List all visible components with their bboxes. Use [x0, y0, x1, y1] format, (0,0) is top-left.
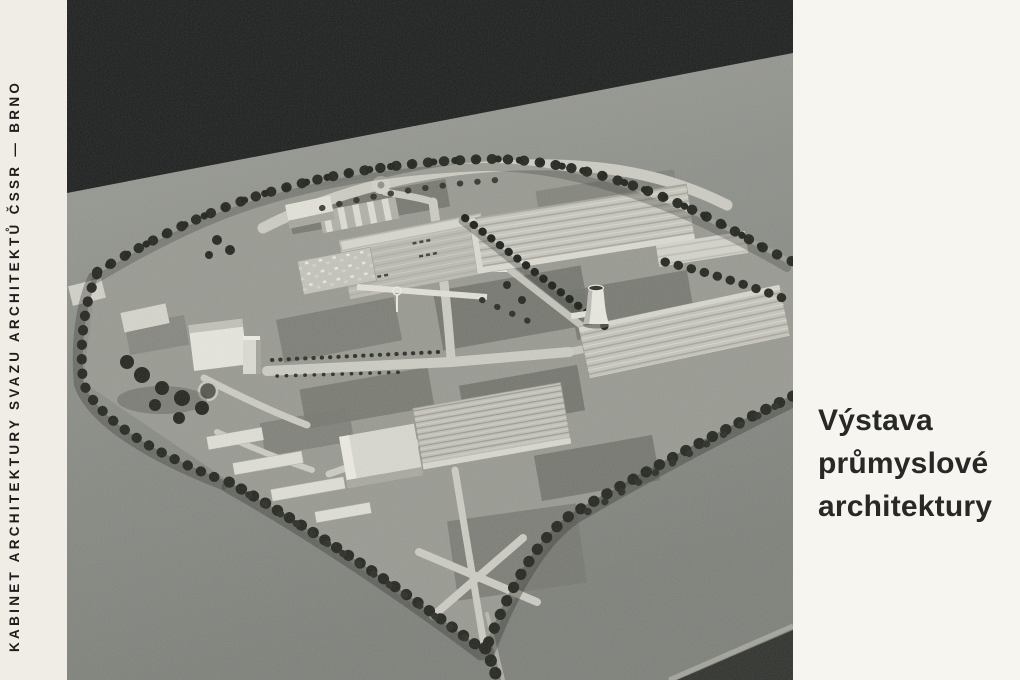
title-panel: Výstava průmyslové architektury [793, 0, 1020, 680]
exhibition-title: Výstava průmyslové architektury [818, 399, 992, 528]
film-grain-overlay [67, 0, 793, 680]
catalog-cover: KABINET ARCHITEKTURY SVAZU ARCHITEKTŮ ČS… [0, 0, 1020, 680]
model-photo-scene [67, 0, 793, 680]
spine-title: KABINET ARCHITEKTURY SVAZU ARCHITEKTŮ ČS… [7, 80, 22, 652]
model-photograph [67, 0, 793, 680]
title-line-1: Výstava [818, 399, 992, 442]
title-line-2: průmyslové [818, 442, 992, 485]
spine-strip: KABINET ARCHITEKTURY SVAZU ARCHITEKTŮ ČS… [0, 0, 67, 680]
title-line-3: architektury [818, 485, 992, 528]
